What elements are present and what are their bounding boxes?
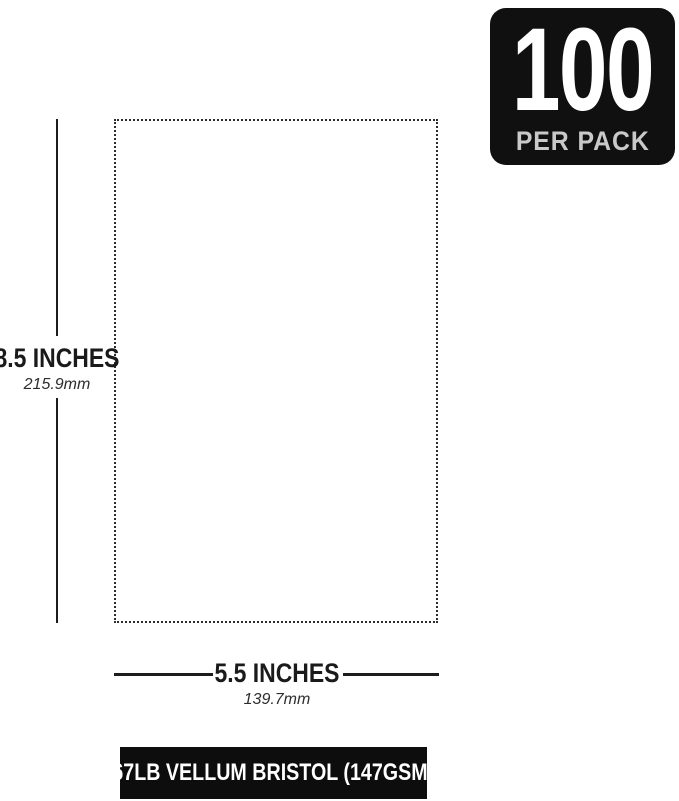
- pack-count-label: PER PACK: [516, 126, 650, 157]
- height-mm-label: 215.9mm: [0, 376, 131, 394]
- height-dimension-line-bottom: [56, 398, 58, 623]
- width-inches-label: 5.5 INCHES: [203, 659, 350, 687]
- pack-count: 100: [512, 16, 653, 125]
- height-dimension-line-top: [56, 119, 58, 336]
- width-dimension-line-left: [114, 673, 213, 676]
- product-infographic: 100 PER PACK 8.5 INCHES 215.9mm 5.5 INCH…: [0, 0, 679, 801]
- height-dimension-label: 8.5 INCHES 215.9mm: [0, 344, 131, 394]
- width-dimension-line-right: [343, 673, 439, 676]
- width-mm-label: 139.7mm: [203, 691, 350, 709]
- per-pack-badge: 100 PER PACK: [490, 8, 675, 165]
- height-inches-label: 8.5 INCHES: [0, 344, 131, 372]
- paper-spec-bar: 67LB VELLUM BRISTOL (147GSM): [120, 747, 427, 799]
- paper-spec-label: 67LB VELLUM BRISTOL (147GSM): [113, 759, 435, 787]
- width-dimension-label: 5.5 INCHES 139.7mm: [203, 659, 350, 709]
- paper-sheet-outline: [114, 119, 438, 623]
